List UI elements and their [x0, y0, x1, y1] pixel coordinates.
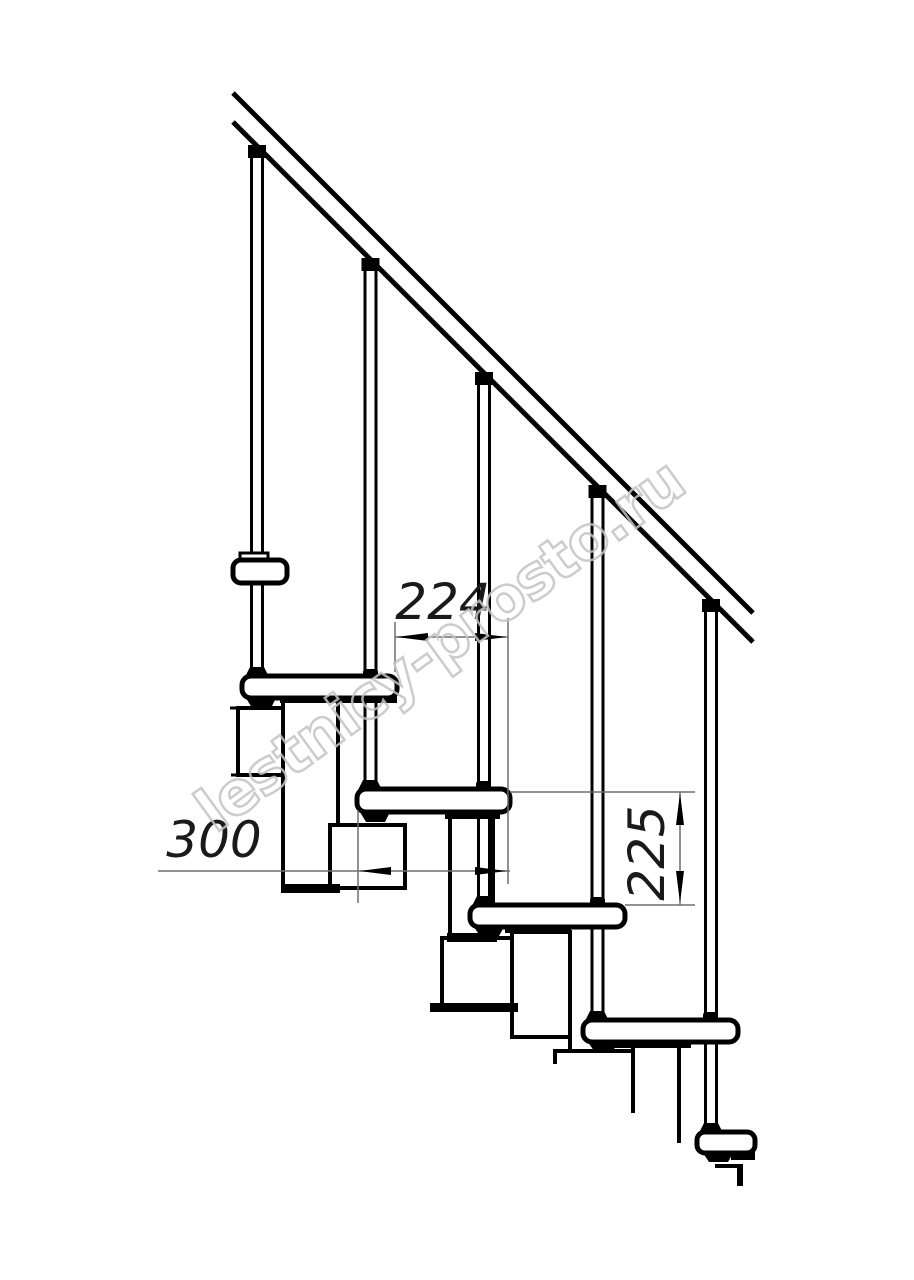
tread-upper-partial [233, 560, 287, 583]
handrail-top-line [233, 93, 753, 613]
handrail-connectors [248, 145, 720, 612]
staircase-side-elevation: 224 300 225 lestnicy-prosto.ru [0, 0, 914, 1280]
handrail-connector [475, 372, 493, 385]
arrowhead-down [676, 871, 684, 903]
bold-edge [615, 1040, 691, 1048]
bold-edge [731, 1151, 755, 1160]
baluster-base [585, 1011, 609, 1021]
baluster-base [699, 1123, 723, 1133]
bold-edge [430, 1003, 518, 1012]
baluster-collar [476, 781, 491, 789]
tread-foot [703, 1153, 733, 1162]
module-step-line [555, 1051, 633, 1064]
handrail-connector [362, 258, 380, 271]
handrail-connector [702, 599, 720, 612]
tread-3 [470, 905, 625, 927]
tread-foot [360, 812, 390, 822]
tread-5 [697, 1132, 755, 1153]
baluster-collar [703, 1012, 718, 1020]
handrail [233, 93, 753, 642]
module-box [330, 825, 405, 888]
module-box [442, 938, 518, 1006]
watermark-text: lestnicy-prosto.ru [183, 446, 697, 846]
baluster-collar [590, 897, 605, 905]
tread-2 [357, 789, 510, 812]
arrowhead-up [676, 793, 684, 825]
bold-edge [445, 811, 500, 819]
bold-edge [505, 925, 571, 933]
baluster-base [245, 667, 269, 677]
bold-edge [281, 884, 340, 893]
baluster-5 [706, 611, 717, 1136]
baluster-1 [252, 157, 263, 680]
dimension-label-225: 225 [618, 805, 676, 900]
baluster-base [358, 780, 382, 790]
module-box [512, 932, 570, 1037]
tread-4 [583, 1020, 738, 1042]
frame-bold-edges [280, 696, 755, 1160]
staircase-drawing-canvas: 224 300 225 lestnicy-prosto.ru [0, 0, 914, 1280]
handrail-connector [248, 145, 266, 158]
